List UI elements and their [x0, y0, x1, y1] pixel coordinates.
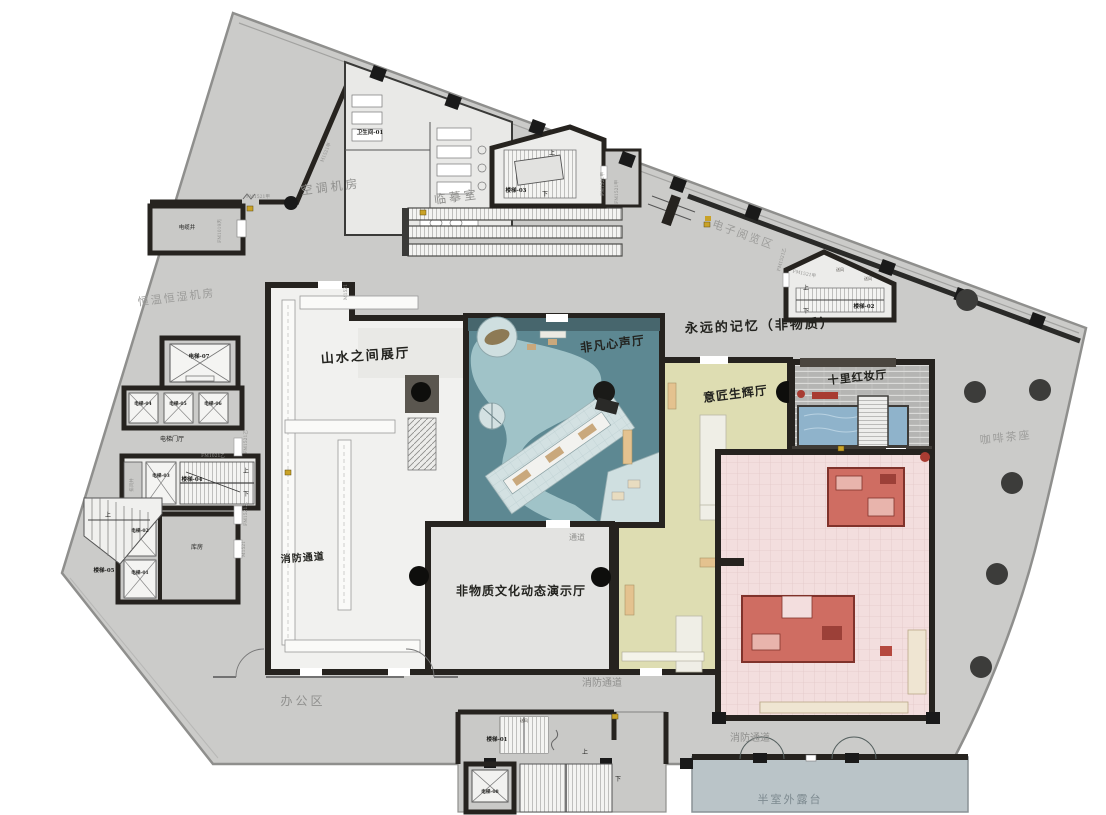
label-door-m1521: M1521: [343, 284, 349, 300]
red-dowry-hall-south: [712, 452, 940, 724]
label-door-fm1021b: FM1021乙: [201, 452, 225, 459]
label-terrace: 半室外露台: [758, 792, 823, 806]
red-furniture-2: [742, 596, 854, 662]
cable-shaft-room: [150, 206, 246, 253]
label-door-fm1521b-2: FM1521乙: [242, 430, 249, 454]
label-elevator-05: 电梯-05: [169, 400, 187, 407]
escalators: [402, 208, 622, 256]
label-up-5: 上: [582, 748, 588, 756]
label-passage: 通道: [569, 532, 585, 542]
label-elevator-02: 电梯-02: [131, 527, 149, 534]
label-door-m1521-2: M1521: [241, 541, 247, 557]
label-stair-03: 楼梯-03: [506, 186, 527, 194]
label-air-supply-2: 送风: [864, 275, 872, 281]
floor-plan-canvas: 空调机房 临摹室 电子阅览区 恒温恒湿机房 咖啡茶座 办公区 半室外露台 消防通…: [0, 0, 1106, 815]
stair-block-south: [458, 712, 666, 812]
label-door-fm1521b-3: FM1521乙: [242, 502, 249, 526]
floor-plan-drawing: 空调机房 临摹室 电子阅览区 恒温恒湿机房 咖啡茶座 办公区 半室外露台 消防通…: [0, 0, 1106, 815]
label-door-fm1521a-2: FM1521甲: [600, 172, 606, 196]
label-office: 办公区: [280, 693, 325, 708]
label-down-5: 下: [615, 776, 621, 783]
label-air-supply-1: 送风: [836, 266, 844, 272]
label-down-3: 下: [243, 491, 249, 498]
elevator-05: [164, 393, 193, 423]
label-up-2: 上: [803, 284, 809, 292]
elevator-01: [124, 560, 156, 598]
label-fire-corridor-2: 消防通道: [582, 676, 622, 689]
label-elevator-06: 电梯-06: [204, 400, 222, 407]
label-up-3: 上: [243, 467, 249, 475]
label-up-4: 上: [105, 511, 111, 519]
elevator-06: [199, 393, 228, 423]
label-stair-04: 楼梯-04: [182, 475, 203, 483]
label-down-1: 下: [542, 191, 548, 198]
label-elevator-04: 电梯-04: [134, 400, 152, 407]
label-door-fm1521a-1: FM1521甲: [246, 194, 270, 200]
label-elevator-01: 电梯-01: [131, 569, 149, 576]
elevator-04: [129, 393, 158, 423]
label-up-1: 上: [549, 149, 555, 157]
label-elevator-03: 电梯-03: [152, 472, 170, 479]
label-storeroom: 库房: [191, 543, 203, 551]
label-toilet: 卫生间-01: [357, 128, 384, 136]
label-elevator-07: 电梯-07: [189, 352, 210, 360]
label-door-fm1019c: FM1019丙: [217, 219, 223, 243]
label-exhaust-shaft: 排风井: [128, 478, 135, 492]
label-cable-shaft: 电缆井: [179, 223, 196, 231]
red-furniture-1: [828, 468, 904, 526]
label-air-supply-3: 送风: [520, 717, 528, 723]
label-demo-hall: 非物质文化动态演示厅: [456, 583, 586, 598]
label-stair-01: 楼梯-01: [487, 735, 508, 743]
label-stair-02: 楼梯-02: [854, 302, 875, 310]
label-door-fm1521a-3: FM1521甲: [614, 180, 620, 204]
label-down-2: 下: [803, 308, 809, 315]
label-elevator-08: 电梯-08: [481, 788, 499, 795]
label-stair-05: 楼梯-05: [94, 566, 115, 574]
label-fire-corridor-3: 消防通道: [730, 731, 770, 744]
label-elevator-lobby: 电梯门厅: [160, 435, 184, 443]
